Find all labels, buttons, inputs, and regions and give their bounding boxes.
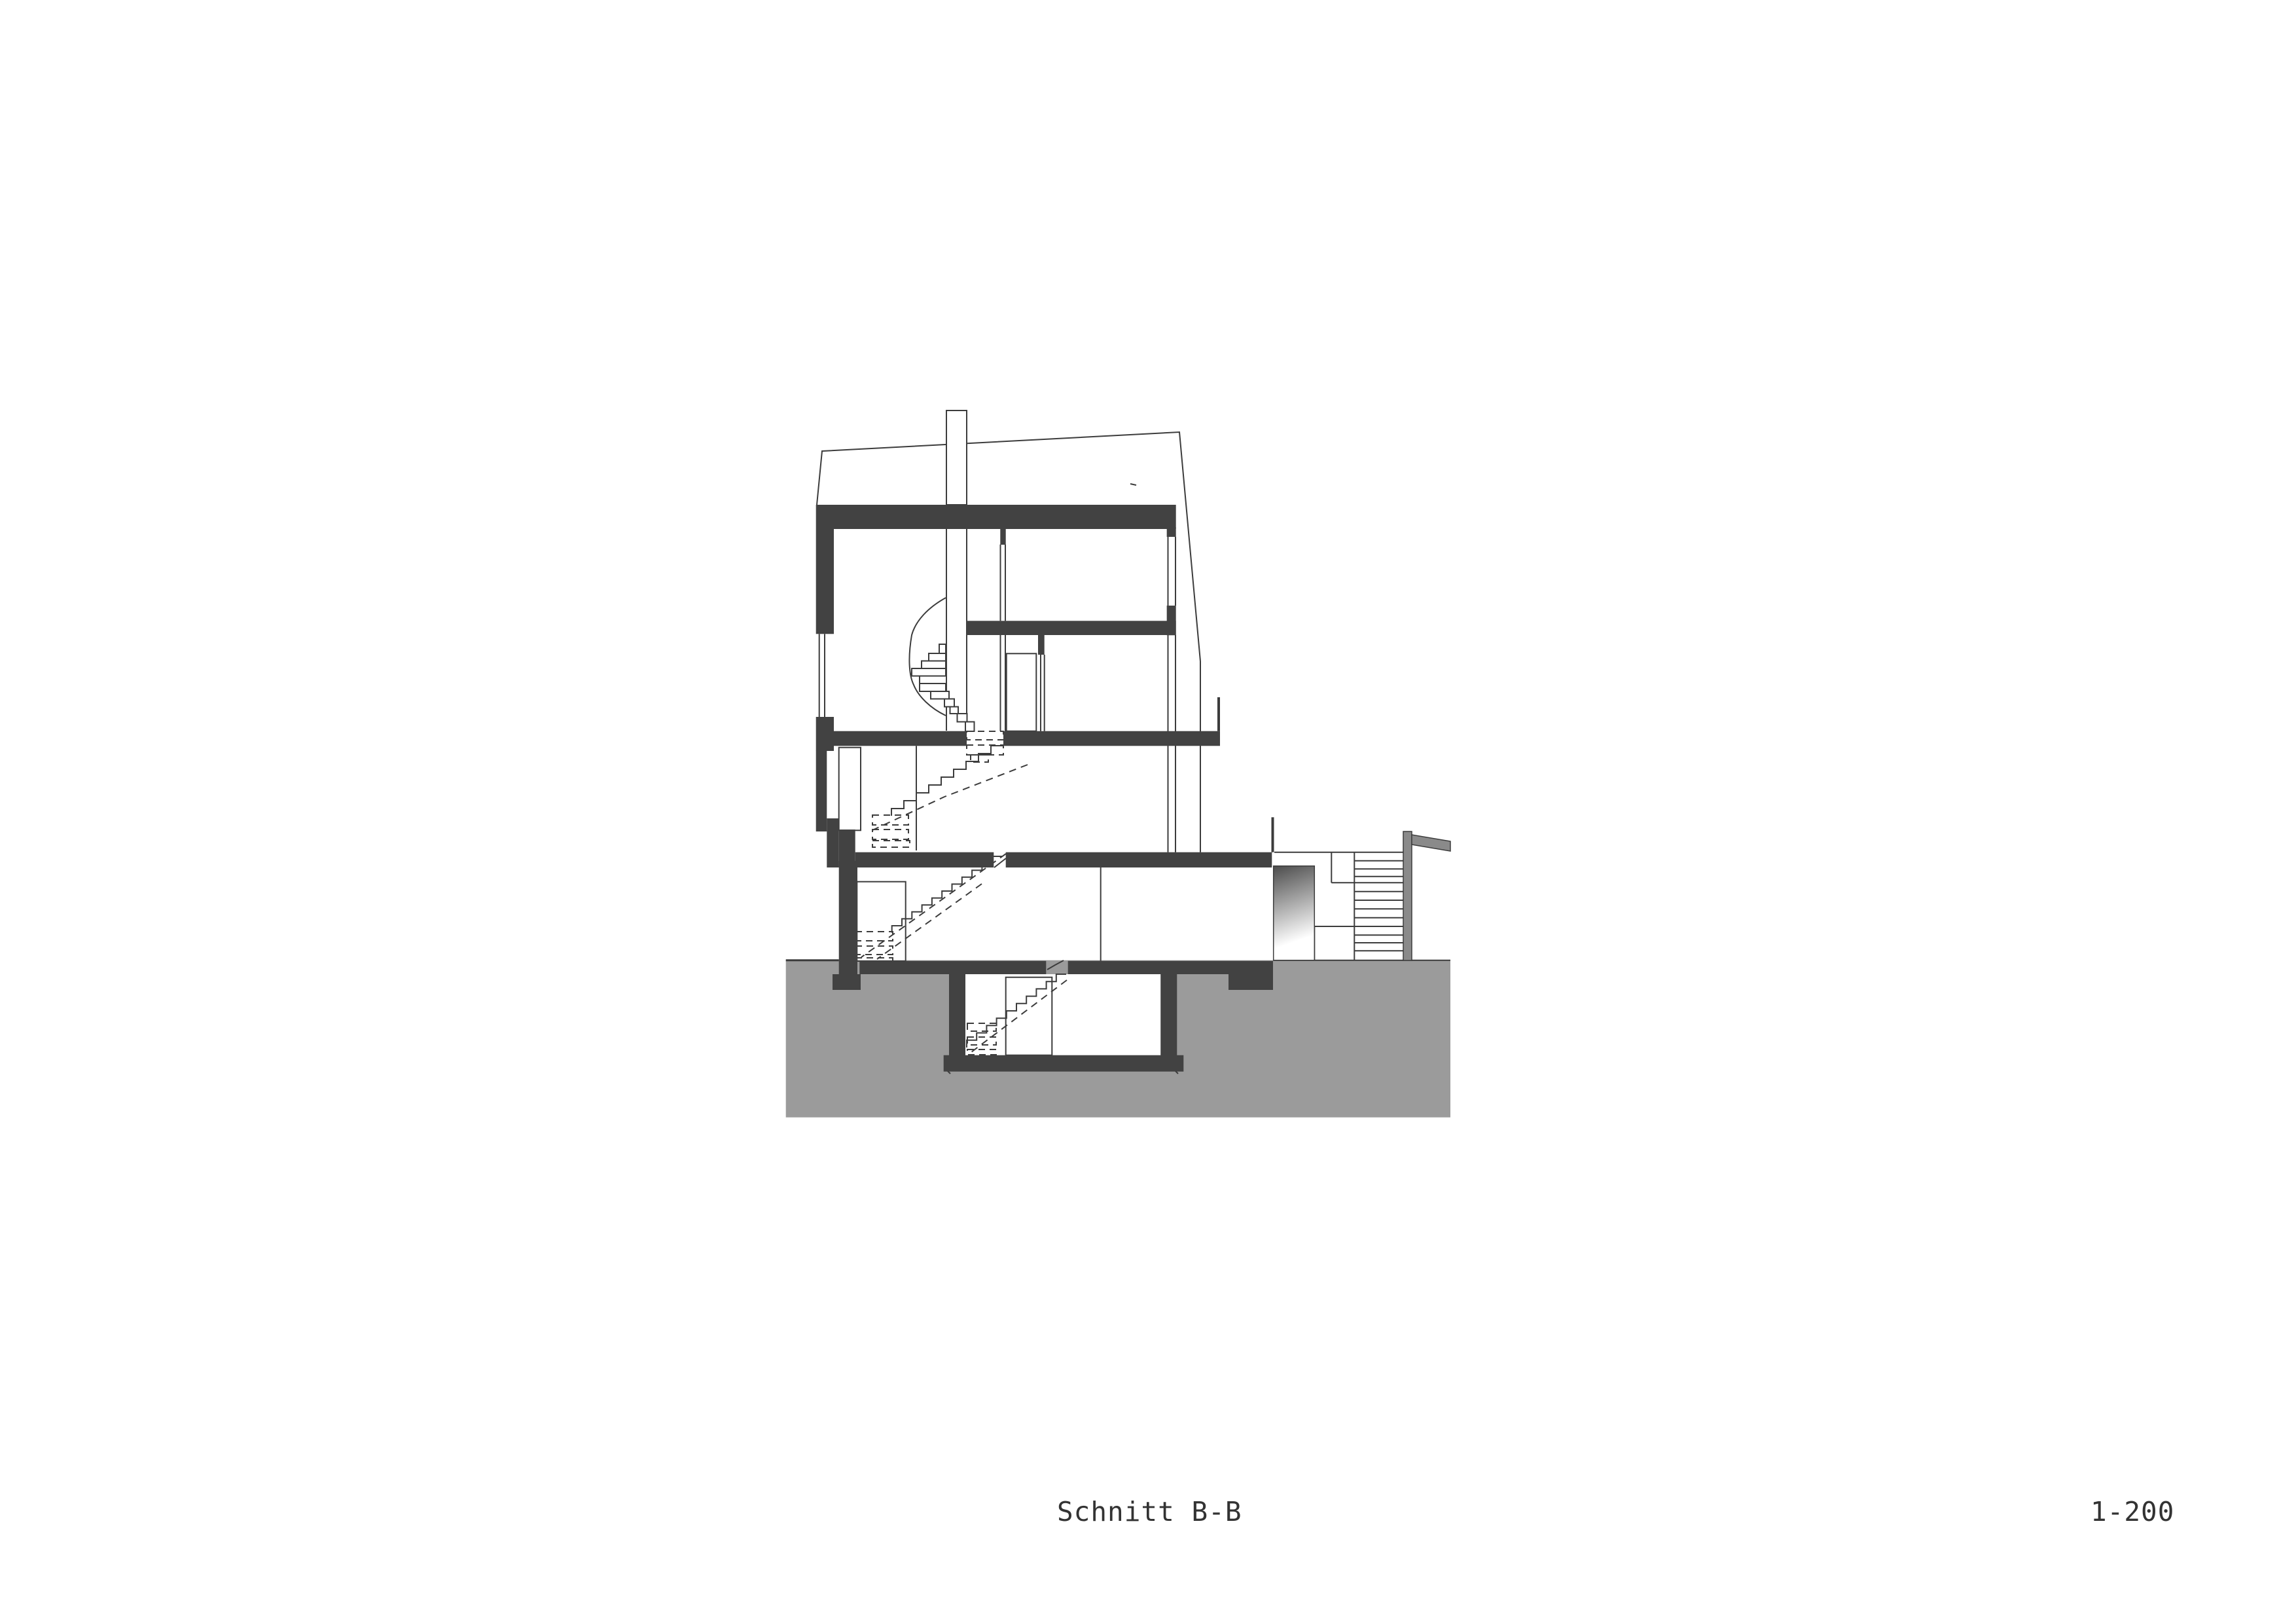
og-left-wall-strip [816, 751, 827, 831]
og-floor-slab [834, 731, 967, 746]
attic-floor-slab [967, 621, 1176, 635]
spiral-step [944, 699, 954, 707]
glass-layer [1274, 866, 1315, 960]
spiral-step [922, 661, 946, 669]
stairwell-wall-stub [1000, 529, 1005, 545]
section-drawing [0, 0, 2296, 1623]
attic-right-wall-head [1167, 527, 1176, 537]
basement-room [965, 974, 1160, 1055]
spiral-step [950, 707, 959, 714]
eg-ceiling-slab-terrace [1006, 852, 1272, 867]
eg-wall-footing [833, 974, 861, 990]
carport-post [1403, 831, 1412, 960]
eg-door [857, 882, 905, 961]
stairwell-opening-hidden [967, 731, 1003, 740]
roof-tick [1130, 484, 1136, 485]
room-cutouts-layer [965, 974, 1160, 1055]
architectural-section-sheet: Schnitt B-B 1-200 [0, 0, 2296, 1623]
basement-left-wall [949, 974, 965, 1055]
spiral-step [920, 676, 946, 684]
roof-slab [816, 505, 1176, 529]
eg-stair-hidden-steps [855, 932, 893, 941]
eg-stair-zigzag [892, 856, 1002, 933]
og-left-wall-block [827, 818, 838, 867]
eg-stair-top-steps [994, 858, 1006, 867]
og-left-door [839, 748, 861, 831]
annex-layer [1403, 831, 1450, 960]
og-stair-hidden-steps [872, 830, 908, 839]
eg-stair-slope-hidden [861, 854, 1006, 957]
eg-floor-slab [1068, 961, 1273, 974]
eg-floor-slab [859, 961, 1046, 974]
og-stair-slope-hidden [872, 765, 1028, 830]
spiral-step [939, 644, 946, 653]
spiral-step [929, 653, 946, 661]
section-title: Schnitt B-B [1057, 1499, 1242, 1525]
og-stair-hidden-steps [872, 815, 908, 825]
spiral-step [965, 722, 975, 732]
eg-left-wall [839, 861, 857, 977]
basement-right-wall [1160, 974, 1177, 1055]
eg-ceiling-slab [855, 852, 994, 867]
scale-indicator: 1-200 [2090, 1499, 2174, 1525]
chimney [946, 410, 967, 505]
stair-steps-layer [912, 410, 975, 731]
entrance-glass-door [1274, 866, 1315, 960]
attic-left-sill-wall [816, 717, 834, 751]
og-wall-stub [1038, 635, 1045, 655]
og-floor-slab-terrace [1003, 731, 1220, 746]
spiral-step [920, 684, 946, 691]
spiral-step [912, 668, 946, 676]
carport-roof-band [1412, 835, 1450, 851]
spiral-step [931, 691, 949, 699]
basement-floor-slab [944, 1055, 1184, 1072]
og-stair-hidden-steps [872, 841, 910, 847]
og-right-door [1007, 653, 1037, 731]
spiral-step [958, 714, 967, 722]
eg-floor-step-block [1229, 973, 1273, 990]
attic-left-wall [816, 529, 834, 634]
